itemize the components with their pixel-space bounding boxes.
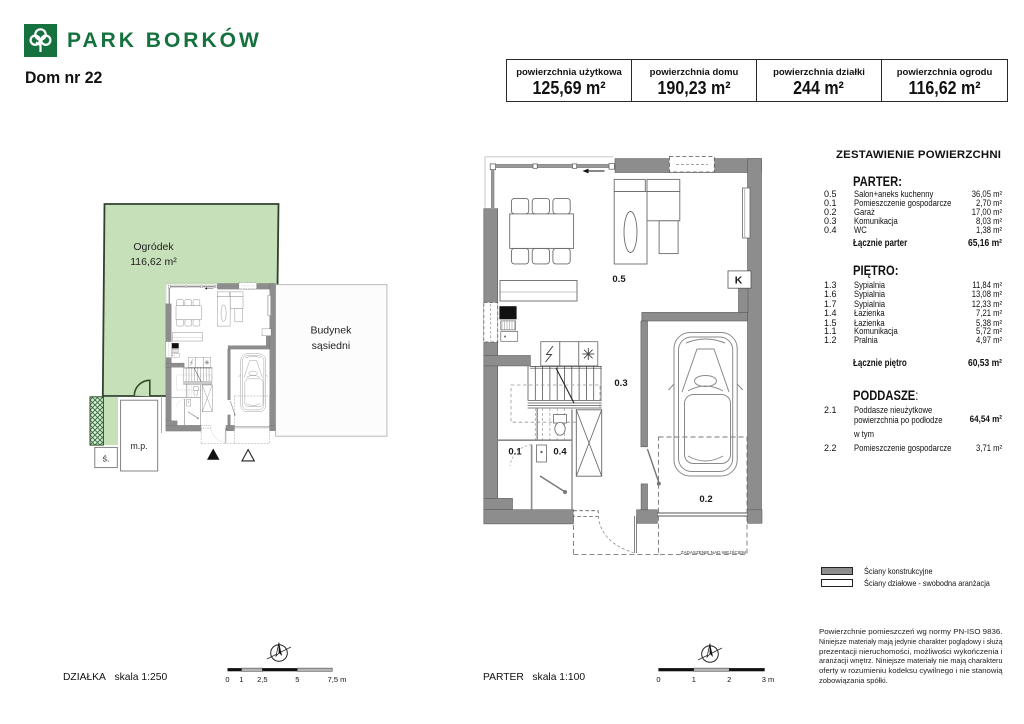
svg-text:5: 5	[295, 675, 299, 684]
svg-text:K: K	[735, 275, 743, 287]
svg-text:1: 1	[692, 675, 696, 684]
svg-text:sąsiedni: sąsiedni	[312, 340, 351, 352]
svg-text:2: 2	[727, 675, 731, 684]
svg-text:116,62 m²: 116,62 m²	[130, 256, 177, 268]
svg-text:0.4: 0.4	[553, 447, 567, 458]
svg-text:0.3: 0.3	[614, 378, 627, 389]
svg-text:1: 1	[239, 675, 243, 684]
svg-text:3 m: 3 m	[762, 675, 775, 684]
svg-text:Ogródek: Ogródek	[133, 241, 174, 253]
svg-text:ś.: ś.	[103, 454, 110, 464]
svg-text:0.5: 0.5	[612, 274, 626, 285]
svg-text:0.1: 0.1	[508, 447, 522, 458]
svg-text:7,5 m: 7,5 m	[328, 675, 347, 684]
svg-text:2,5: 2,5	[257, 675, 267, 684]
svg-text:0.2: 0.2	[699, 494, 712, 505]
svg-text:0: 0	[656, 675, 660, 684]
svg-text:m.p.: m.p.	[130, 441, 147, 451]
svg-text:Budynek: Budynek	[310, 325, 352, 337]
svg-text:0: 0	[225, 675, 229, 684]
svg-text:ZADASZENIE NAD WEJŚCIEM: ZADASZENIE NAD WEJŚCIEM	[681, 548, 747, 555]
